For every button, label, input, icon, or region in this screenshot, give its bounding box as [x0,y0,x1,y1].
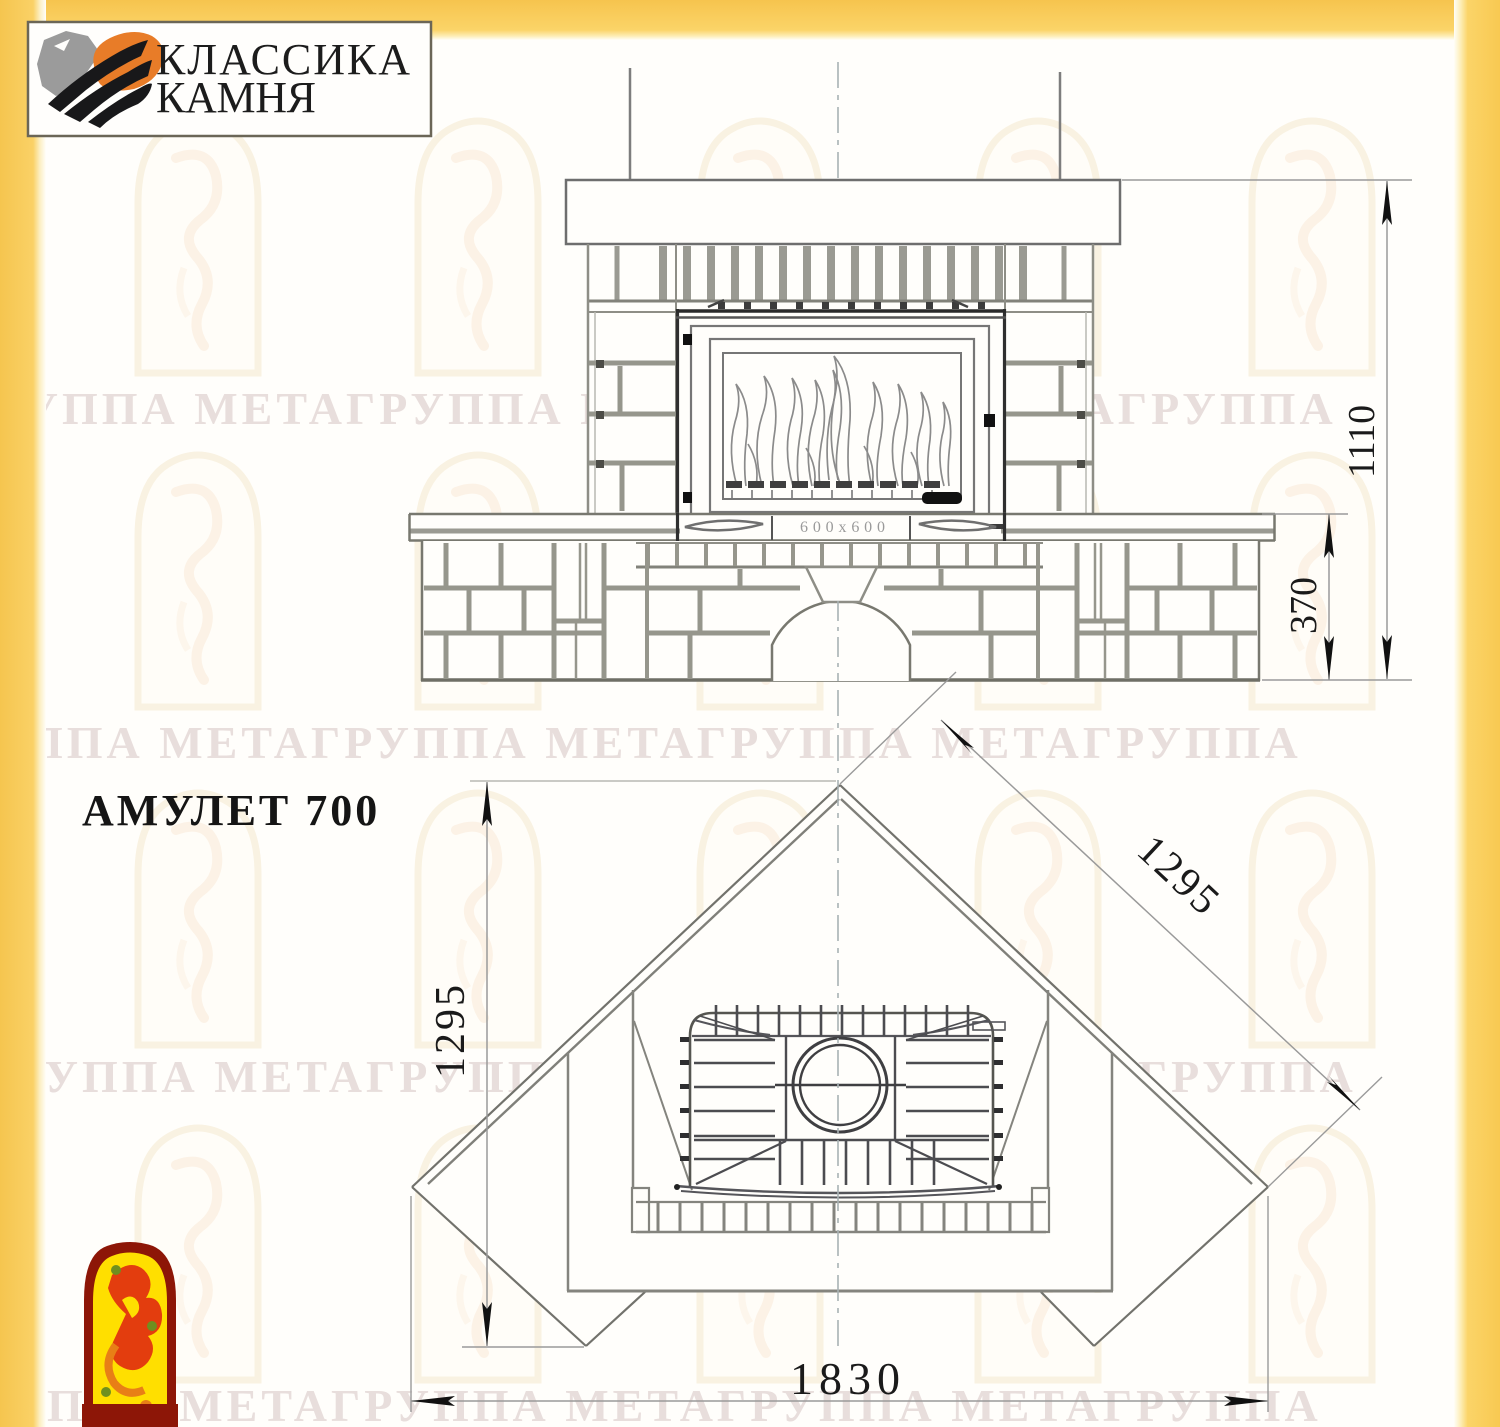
svg-text:ГРУППА МЕТАГРУППА МЕТАГРУППА М: ГРУППА МЕТАГРУППА МЕТАГРУППА МЕТАГРУППА [0,717,1302,768]
svg-text:1110: 1110 [1341,405,1383,478]
svg-text:1295: 1295 [428,982,474,1078]
svg-text:КАМНЯ: КАМНЯ [156,73,320,122]
svg-text:600x600: 600x600 [800,519,886,536]
svg-text:1830: 1830 [790,1353,906,1404]
svg-text:АМУЛЕТ 700: АМУЛЕТ 700 [82,786,380,835]
svg-text:370: 370 [1283,577,1325,634]
svg-text:ГРУППА МЕТАГРУППА МЕТАГРУППА М: ГРУППА МЕТАГРУППА МЕТАГРУППА МЕТАГРУППА [0,1380,1322,1427]
